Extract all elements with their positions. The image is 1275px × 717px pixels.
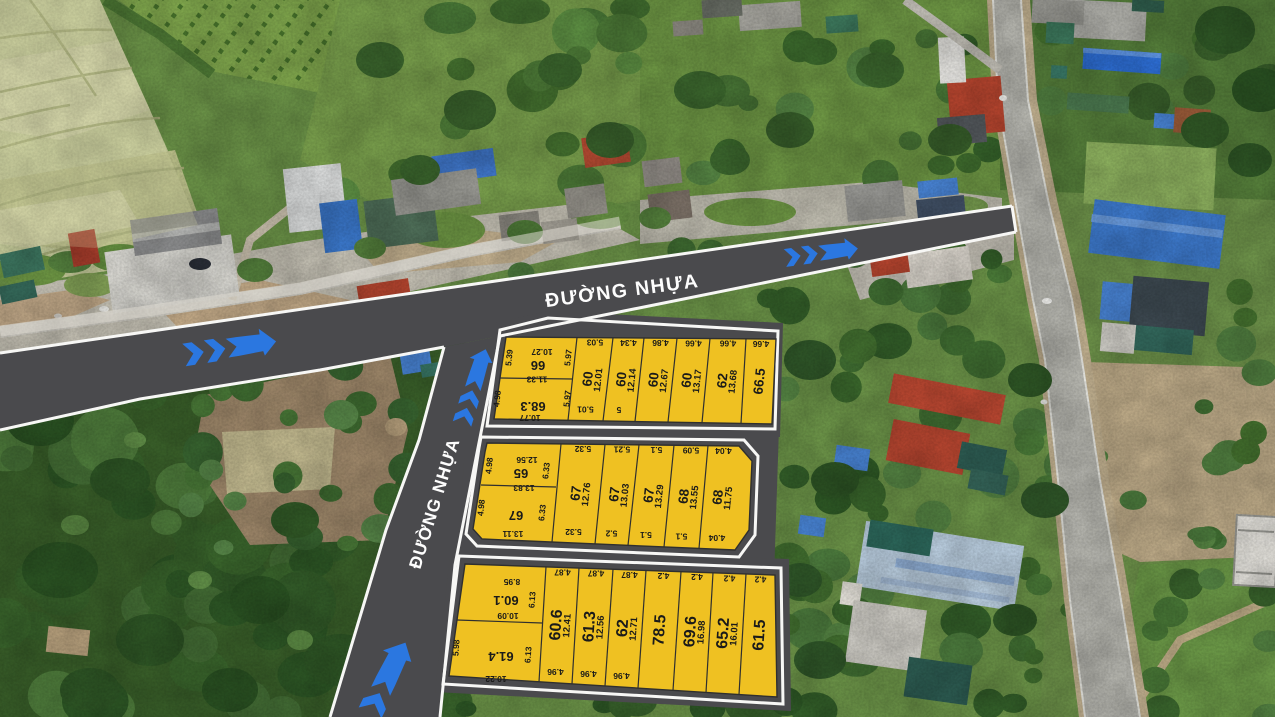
svg-text:5.39: 5.39 — [503, 349, 515, 367]
svg-text:68.3: 68.3 — [520, 399, 545, 414]
svg-text:4.98: 4.98 — [475, 499, 487, 517]
svg-text:5.32: 5.32 — [565, 527, 582, 537]
svg-text:10.22: 10.22 — [485, 674, 507, 684]
svg-text:6.33: 6.33 — [536, 504, 548, 522]
svg-text:4.2: 4.2 — [657, 571, 669, 581]
svg-text:16.98: 16.98 — [695, 620, 708, 644]
svg-text:78.5: 78.5 — [650, 614, 669, 646]
svg-text:6.33: 6.33 — [540, 462, 552, 480]
svg-text:4.98: 4.98 — [491, 390, 503, 408]
svg-text:5.97: 5.97 — [561, 390, 573, 408]
svg-text:67: 67 — [509, 508, 523, 523]
svg-text:5.1: 5.1 — [640, 530, 652, 540]
svg-text:66: 66 — [531, 358, 545, 373]
svg-text:4.66: 4.66 — [719, 339, 736, 349]
svg-text:16.01: 16.01 — [728, 621, 741, 646]
svg-text:5.09: 5.09 — [682, 445, 699, 455]
svg-text:4.96: 4.96 — [613, 671, 630, 681]
svg-text:4.87: 4.87 — [587, 569, 604, 579]
svg-text:5.1: 5.1 — [675, 532, 687, 542]
svg-text:5.1: 5.1 — [650, 445, 662, 455]
svg-text:12.56: 12.56 — [594, 615, 607, 639]
svg-text:4.87: 4.87 — [554, 568, 571, 578]
svg-text:4.86: 4.86 — [652, 338, 669, 348]
svg-text:60.1: 60.1 — [493, 593, 518, 608]
svg-text:4.2: 4.2 — [754, 575, 766, 585]
svg-text:10.77: 10.77 — [519, 413, 541, 423]
svg-text:10.27: 10.27 — [531, 347, 553, 357]
svg-text:5.03: 5.03 — [586, 338, 603, 348]
svg-text:6.13: 6.13 — [522, 646, 533, 663]
svg-text:6.13: 6.13 — [526, 591, 537, 608]
svg-text:4.66: 4.66 — [685, 338, 702, 348]
svg-text:5.21: 5.21 — [613, 445, 630, 455]
svg-text:12.56: 12.56 — [516, 455, 538, 465]
svg-text:4.34: 4.34 — [620, 338, 637, 348]
svg-text:4.96: 4.96 — [580, 669, 597, 679]
svg-text:5.98: 5.98 — [450, 639, 461, 656]
svg-text:5.01: 5.01 — [577, 405, 594, 415]
svg-text:11.33: 11.33 — [526, 375, 547, 385]
svg-text:12.71: 12.71 — [628, 616, 641, 641]
svg-text:8.95: 8.95 — [503, 577, 520, 587]
svg-text:12.41: 12.41 — [561, 613, 574, 638]
svg-text:5.32: 5.32 — [574, 444, 591, 454]
svg-text:4.04: 4.04 — [708, 533, 725, 543]
svg-text:4.96: 4.96 — [547, 667, 564, 677]
svg-text:4.2: 4.2 — [691, 572, 703, 582]
svg-text:5.2: 5.2 — [605, 529, 617, 539]
svg-text:61.5: 61.5 — [750, 619, 769, 651]
svg-text:4.66: 4.66 — [752, 339, 769, 349]
svg-text:66.5: 66.5 — [750, 367, 768, 395]
svg-text:10.09: 10.09 — [497, 611, 519, 621]
svg-text:61.4: 61.4 — [488, 649, 514, 664]
svg-text:4.98: 4.98 — [483, 457, 495, 475]
svg-text:4.2: 4.2 — [723, 573, 735, 583]
svg-text:4.04: 4.04 — [715, 446, 732, 456]
svg-text:5.97: 5.97 — [562, 349, 574, 367]
svg-text:65: 65 — [514, 466, 528, 481]
svg-text:13.11: 13.11 — [502, 529, 523, 539]
svg-text:13.83: 13.83 — [513, 483, 535, 493]
svg-text:5: 5 — [616, 405, 621, 415]
svg-text:4.87: 4.87 — [621, 570, 638, 580]
